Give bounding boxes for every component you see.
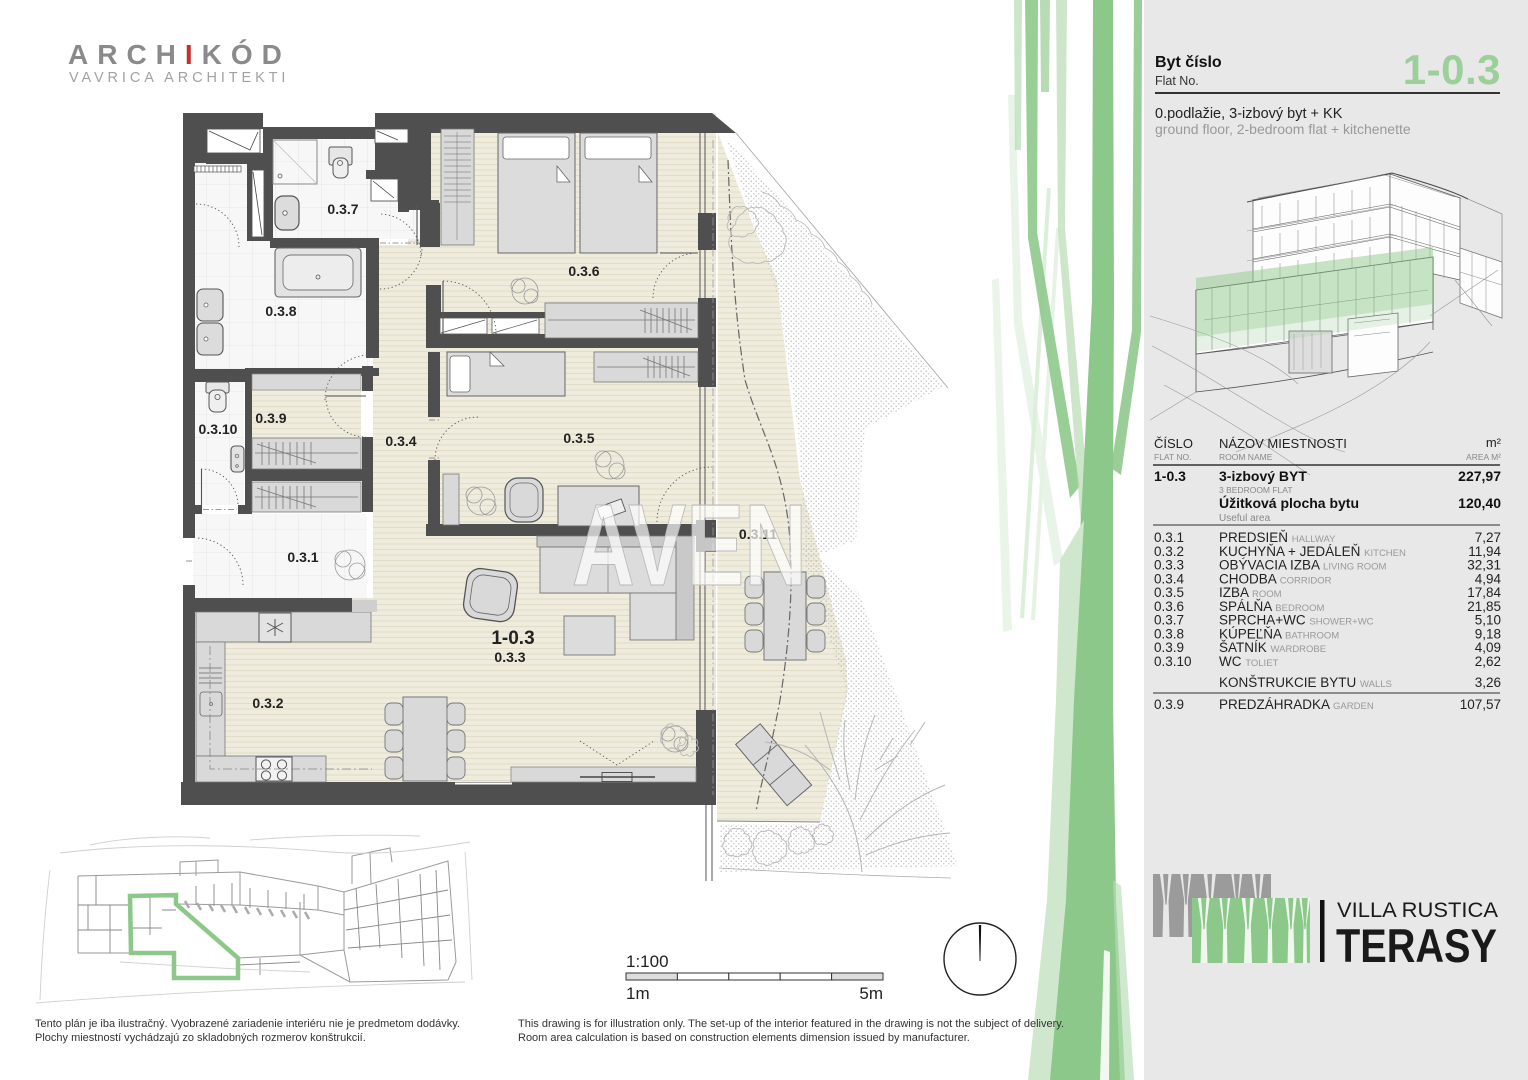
svg-text:Plochy miestností vychádzajú z: Plochy miestností vychádzajú zo skladobn… xyxy=(35,1032,366,1044)
svg-text:1-0.3: 1-0.3 xyxy=(491,628,534,649)
svg-text:32,31: 32,31 xyxy=(1467,558,1501,573)
svg-text:1-0.3: 1-0.3 xyxy=(1154,468,1186,484)
svg-text:0.3.4: 0.3.4 xyxy=(385,433,416,449)
svg-text:Byt číslo: Byt číslo xyxy=(1155,54,1222,71)
svg-text:21,85: 21,85 xyxy=(1467,599,1501,614)
svg-text:0.3.9: 0.3.9 xyxy=(1154,697,1184,712)
svg-text:1m: 1m xyxy=(626,984,650,1003)
svg-text:0.3.3: 0.3.3 xyxy=(1154,558,1184,573)
svg-text:11,94: 11,94 xyxy=(1468,544,1501,559)
svg-text:2,62: 2,62 xyxy=(1475,654,1501,669)
svg-text:0.3.6: 0.3.6 xyxy=(568,263,599,279)
svg-text:0.3.2: 0.3.2 xyxy=(252,695,283,711)
svg-text:0.3.5: 0.3.5 xyxy=(1154,585,1184,600)
svg-text:5,10: 5,10 xyxy=(1475,613,1501,628)
svg-text:0.3.1: 0.3.1 xyxy=(287,549,318,565)
svg-text:0.3.6: 0.3.6 xyxy=(1154,599,1184,614)
svg-text:NÁZOV MIESTNOSTI: NÁZOV MIESTNOSTI xyxy=(1219,436,1347,451)
svg-text:1-0.3: 1-0.3 xyxy=(1403,46,1501,93)
svg-text:0.3.7: 0.3.7 xyxy=(1154,613,1184,628)
svg-text:0.3.9: 0.3.9 xyxy=(1154,640,1184,655)
svg-text:0.3.7: 0.3.7 xyxy=(327,201,358,217)
svg-text:227,97: 227,97 xyxy=(1458,468,1501,484)
svg-text:m²: m² xyxy=(1486,435,1502,450)
svg-text:0.3.2: 0.3.2 xyxy=(1154,544,1184,559)
svg-text:Tento plán je iba ilustračný.: Tento plán je iba ilustračný. Vyobrazené… xyxy=(35,1018,460,1030)
svg-text:AVEN: AVEN xyxy=(572,480,807,610)
svg-text:This drawing is for illustrati: This drawing is for illustration only. T… xyxy=(518,1018,1064,1030)
svg-text:TERASY: TERASY xyxy=(1336,919,1497,972)
svg-text:ROOM NAME: ROOM NAME xyxy=(1219,452,1273,462)
svg-text:5m: 5m xyxy=(859,984,883,1003)
svg-text:0.3.10: 0.3.10 xyxy=(1154,654,1192,669)
svg-text:0.3.10: 0.3.10 xyxy=(199,421,238,437)
svg-text:120,40: 120,40 xyxy=(1458,495,1501,511)
svg-text:Room area calculation is based: Room area calculation is based on constr… xyxy=(518,1032,970,1044)
svg-text:0.3.3: 0.3.3 xyxy=(494,649,525,665)
svg-text:Useful area: Useful area xyxy=(1219,513,1271,524)
svg-text:107,57: 107,57 xyxy=(1460,697,1501,712)
svg-text:0.3.5: 0.3.5 xyxy=(563,430,594,446)
svg-text:ground floor, 2-bedroom flat +: ground floor, 2-bedroom flat + kitchenet… xyxy=(1155,121,1411,137)
svg-text:17,84: 17,84 xyxy=(1467,585,1501,600)
svg-text:0.3.1: 0.3.1 xyxy=(1154,530,1184,545)
svg-text:1:100: 1:100 xyxy=(626,952,669,971)
svg-text:3-izbový BYT: 3-izbový BYT xyxy=(1219,468,1307,484)
svg-text:AREA M²: AREA M² xyxy=(1466,452,1501,462)
svg-text:ČÍSLO: ČÍSLO xyxy=(1154,436,1193,451)
svg-text:4,09: 4,09 xyxy=(1475,640,1501,655)
svg-text:VAVRICA ARCHITEKTI: VAVRICA ARCHITEKTI xyxy=(69,70,289,86)
svg-text:Flat No.: Flat No. xyxy=(1155,74,1199,88)
svg-text:0.3.8: 0.3.8 xyxy=(265,303,296,319)
svg-text:3 BEDROOM FLAT: 3 BEDROOM FLAT xyxy=(1219,485,1293,495)
svg-text:Úžitková plocha bytu: Úžitková plocha bytu xyxy=(1219,494,1359,511)
svg-text:FLAT NO.: FLAT NO. xyxy=(1154,452,1191,462)
svg-text:0.3.9: 0.3.9 xyxy=(255,410,286,426)
svg-text:ARCHIKÓD: ARCHIKÓD xyxy=(68,39,291,70)
svg-text:7,27: 7,27 xyxy=(1475,530,1501,545)
svg-text:0.podlažie, 3-izbový byt + KK: 0.podlažie, 3-izbový byt + KK xyxy=(1155,106,1343,122)
svg-text:3,26: 3,26 xyxy=(1475,675,1501,690)
